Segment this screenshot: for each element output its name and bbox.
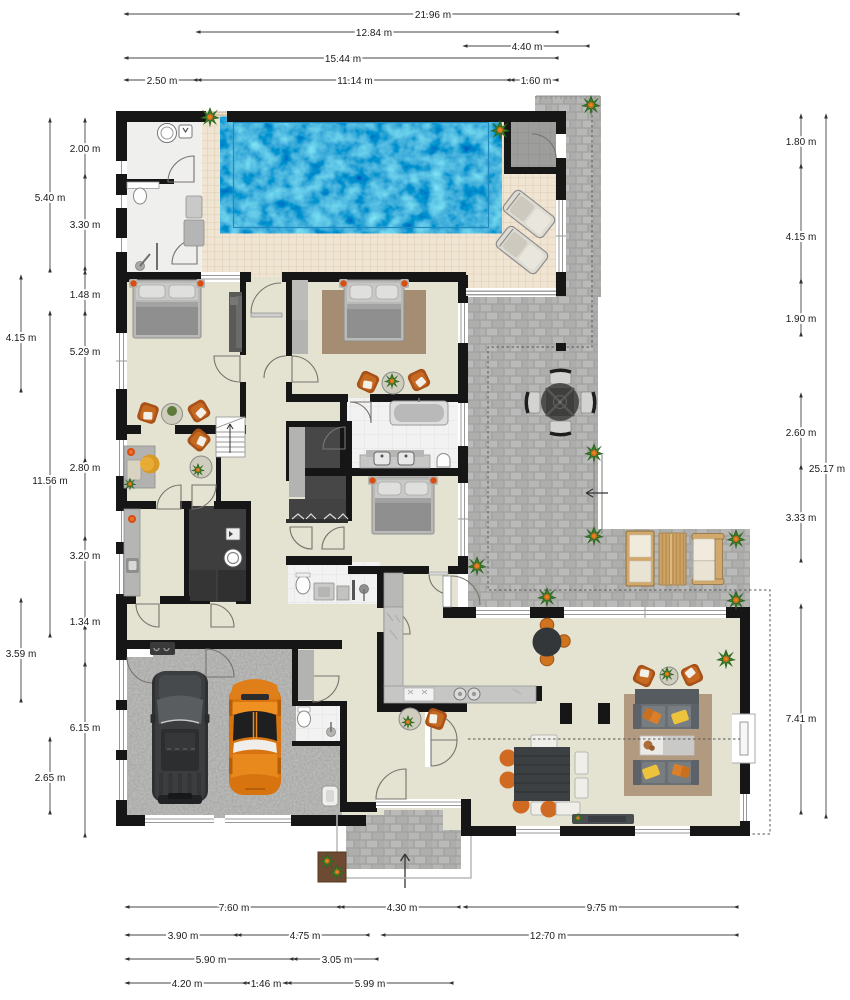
svg-text:2.60 m: 2.60 m bbox=[786, 428, 817, 439]
svg-text:15.44 m: 15.44 m bbox=[325, 54, 361, 65]
svg-text:11.14 m: 11.14 m bbox=[337, 76, 372, 87]
svg-text:1.46 m: 1.46 m bbox=[251, 979, 282, 990]
svg-text:3.90 m: 3.90 m bbox=[168, 931, 199, 942]
svg-text:3.05 m: 3.05 m bbox=[322, 955, 353, 966]
svg-text:3.33 m: 3.33 m bbox=[786, 513, 817, 524]
svg-text:3.59 m: 3.59 m bbox=[6, 649, 37, 660]
svg-text:12.84 m: 12.84 m bbox=[356, 28, 392, 39]
svg-text:1.60 m: 1.60 m bbox=[521, 76, 552, 87]
svg-text:4.40 m: 4.40 m bbox=[512, 42, 543, 53]
svg-text:1.34 m: 1.34 m bbox=[70, 617, 101, 628]
svg-text:1.90 m: 1.90 m bbox=[786, 314, 817, 325]
svg-text:21.96 m: 21.96 m bbox=[415, 10, 451, 21]
svg-text:5.29 m: 5.29 m bbox=[70, 347, 101, 358]
svg-text:7.41 m: 7.41 m bbox=[786, 714, 817, 725]
svg-text:6.15 m: 6.15 m bbox=[70, 723, 101, 734]
svg-text:2.65 m: 2.65 m bbox=[35, 773, 66, 784]
svg-text:2.80 m: 2.80 m bbox=[70, 463, 101, 474]
svg-text:5.99 m: 5.99 m bbox=[355, 979, 386, 990]
svg-text:4.30 m: 4.30 m bbox=[387, 903, 418, 914]
svg-text:11.56 m: 11.56 m bbox=[32, 476, 67, 487]
svg-text:4.15 m: 4.15 m bbox=[6, 333, 37, 344]
svg-text:1.80 m: 1.80 m bbox=[786, 137, 817, 148]
svg-text:4.75 m: 4.75 m bbox=[290, 931, 321, 942]
svg-text:2.00 m: 2.00 m bbox=[70, 144, 101, 155]
svg-text:5.40 m: 5.40 m bbox=[35, 193, 66, 204]
svg-text:3.30 m: 3.30 m bbox=[70, 220, 101, 231]
svg-text:3.20 m: 3.20 m bbox=[70, 551, 101, 562]
svg-text:4.20 m: 4.20 m bbox=[172, 979, 203, 990]
svg-text:4.15 m: 4.15 m bbox=[786, 232, 817, 243]
svg-text:7.60 m: 7.60 m bbox=[219, 903, 250, 914]
svg-text:25.17 m: 25.17 m bbox=[809, 464, 845, 475]
svg-text:5.90 m: 5.90 m bbox=[196, 955, 227, 966]
svg-text:2.50 m: 2.50 m bbox=[147, 76, 178, 87]
svg-text:9.75 m: 9.75 m bbox=[587, 903, 618, 914]
svg-text:1.48 m: 1.48 m bbox=[70, 290, 101, 301]
svg-text:12.70 m: 12.70 m bbox=[530, 931, 566, 942]
